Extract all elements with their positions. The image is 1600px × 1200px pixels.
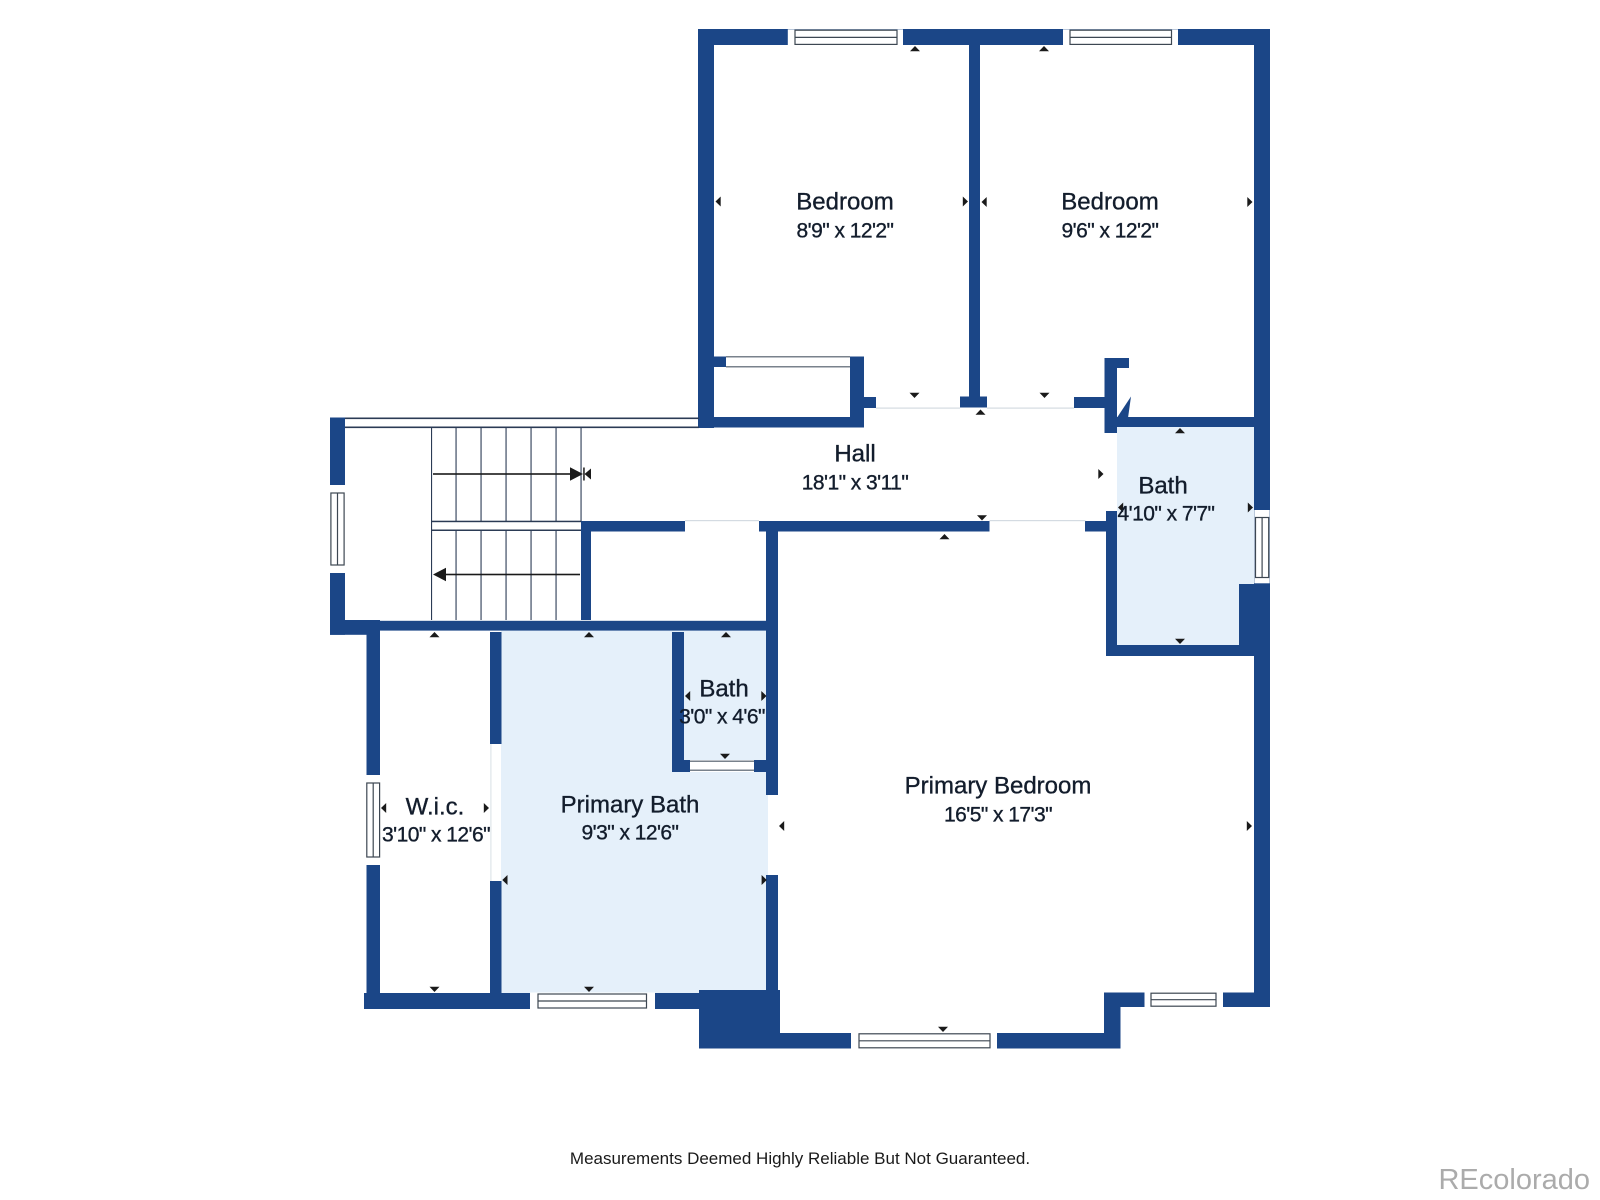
- svg-text:W.i.c.: W.i.c.: [406, 794, 465, 821]
- svg-text:Bath: Bath: [1138, 473, 1187, 500]
- svg-text:4'10" x 7'7": 4'10" x 7'7": [1118, 503, 1215, 526]
- svg-text:REcolorado: REcolorado: [1438, 1164, 1590, 1196]
- svg-text:Bedroom: Bedroom: [1061, 189, 1158, 216]
- svg-text:16'5" x 17'3": 16'5" x 17'3": [944, 804, 1052, 827]
- svg-text:3'10" x 12'6": 3'10" x 12'6": [382, 824, 490, 847]
- svg-text:9'6" x 12'2": 9'6" x 12'2": [1062, 220, 1159, 243]
- svg-text:Bedroom: Bedroom: [796, 189, 893, 216]
- svg-text:3'0" x 4'6": 3'0" x 4'6": [679, 706, 765, 729]
- svg-text:9'3" x 12'6": 9'3" x 12'6": [582, 822, 679, 845]
- svg-text:Hall: Hall: [834, 441, 875, 468]
- svg-text:18'1" x 3'11": 18'1" x 3'11": [802, 472, 909, 495]
- svg-text:Bath: Bath: [699, 676, 748, 703]
- svg-text:Primary Bedroom: Primary Bedroom: [905, 773, 1092, 800]
- svg-text:Primary Bath: Primary Bath: [561, 792, 700, 819]
- svg-text:Measurements Deemed Highly Rel: Measurements Deemed Highly Reliable But …: [570, 1149, 1030, 1168]
- svg-text:8'9" x 12'2": 8'9" x 12'2": [797, 220, 894, 243]
